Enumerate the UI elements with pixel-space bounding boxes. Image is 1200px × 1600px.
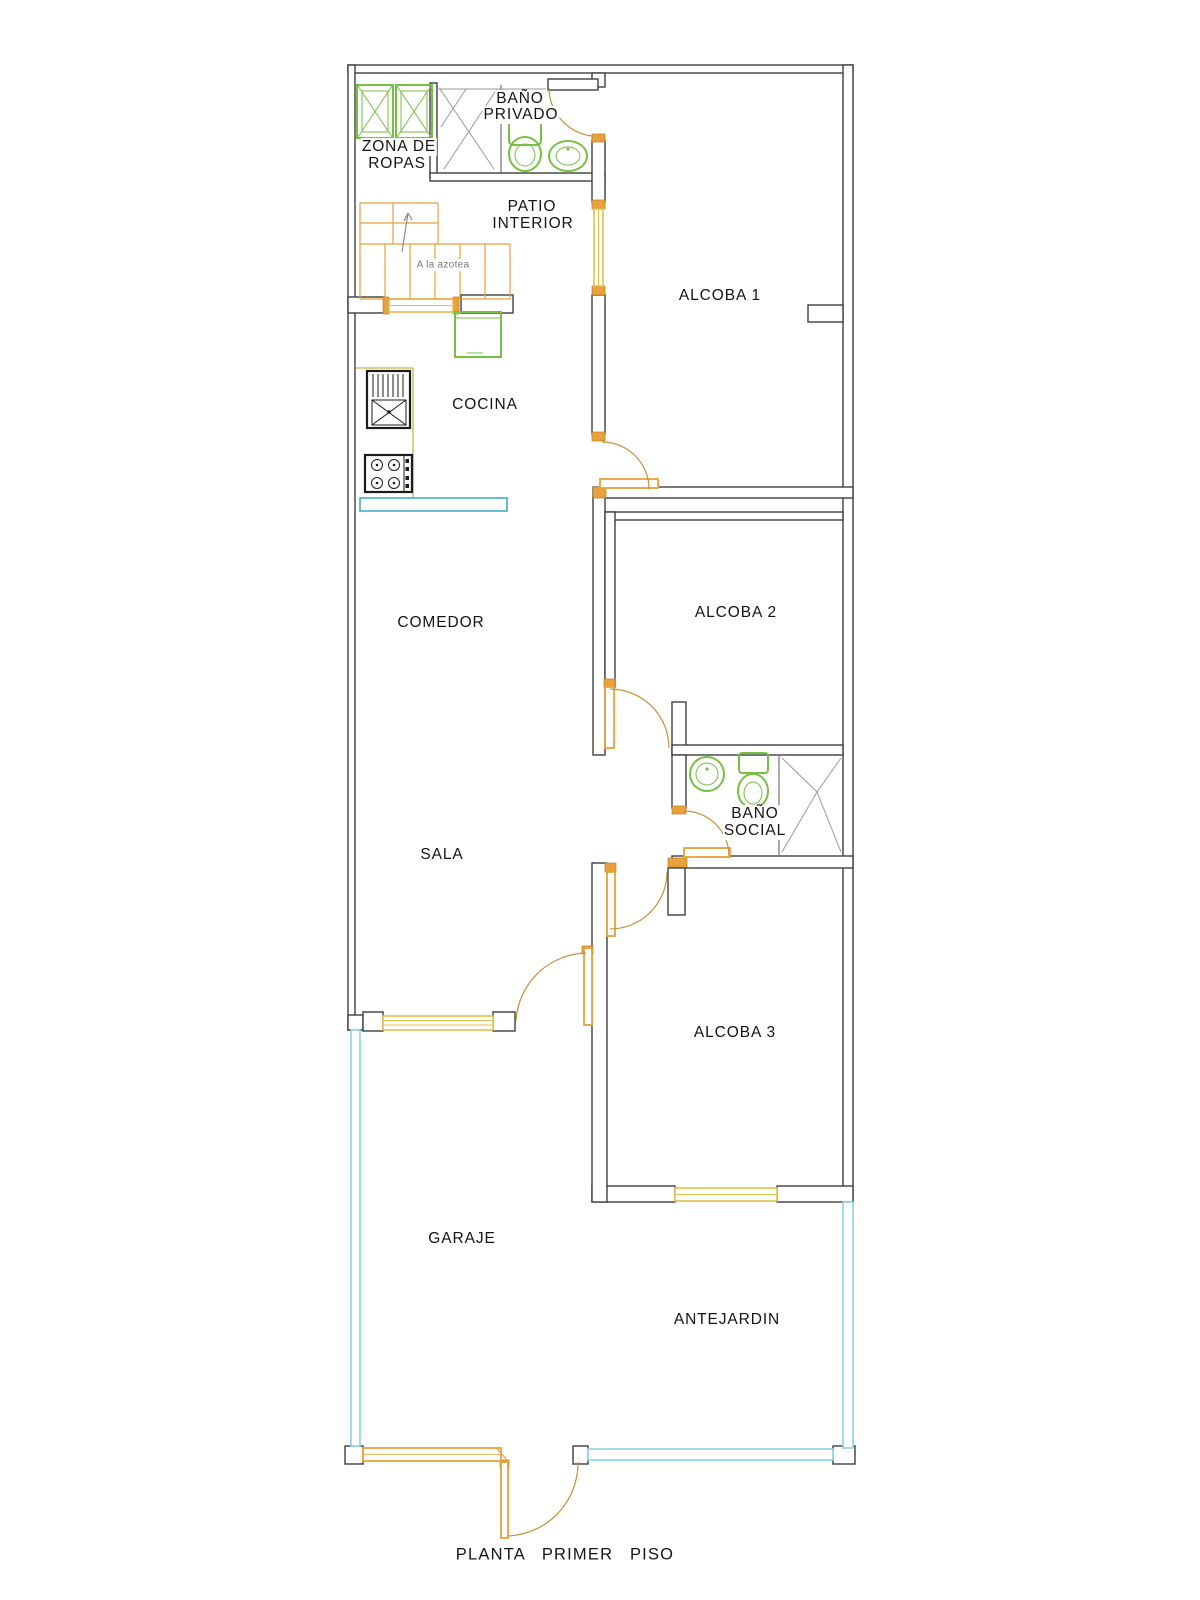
stairs — [360, 203, 510, 299]
room-label-patio-interior-1: PATIO — [507, 198, 558, 216]
room-label-alcoba-2: ALCOBA 2 — [694, 604, 778, 622]
room-label-zona-de-ropas-1: ZONA DE — [361, 138, 437, 156]
stairs-note: A la azotea — [416, 259, 471, 271]
room-label-cocina: COCINA — [451, 396, 519, 414]
alcoba-1-door — [600, 442, 658, 489]
room-label-alcoba-1: ALCOBA 1 — [678, 287, 762, 305]
bano-social-toilet-icon — [738, 753, 768, 808]
washing-machine-icon — [357, 85, 393, 138]
front-pedestrian-door — [501, 1462, 578, 1538]
bano-social-sink-icon — [690, 757, 724, 791]
plan-title: PLANTA PRIMER PISO — [455, 1546, 675, 1565]
refrigerator-icon — [455, 312, 501, 357]
room-label-sala: SALA — [419, 846, 464, 864]
sala-window — [383, 1016, 493, 1030]
bano-social-shower-icon — [779, 756, 841, 855]
kitchen-sink-icon — [367, 371, 410, 428]
room-label-comedor: COMEDOR — [396, 614, 485, 632]
garage-gate — [363, 1448, 509, 1462]
room-label-antejardin: ANTEJARDIN — [673, 1311, 781, 1329]
bano-privado-sink-icon — [549, 141, 587, 171]
room-label-garaje: GARAJE — [427, 1230, 496, 1248]
alcoba-3-door — [607, 872, 667, 936]
room-label-alcoba-3: ALCOBA 3 — [693, 1024, 777, 1042]
alcoba-3-window — [675, 1188, 777, 1201]
sala-entrance-door — [516, 948, 592, 1025]
room-label-zona-de-ropas-2: ROPAS — [367, 155, 427, 173]
stove-icon — [365, 455, 412, 492]
room-label-patio-interior-2: INTERIOR — [491, 215, 574, 233]
bano-privado-toilet-icon — [509, 121, 541, 171]
patio-alcoba1-window — [592, 200, 605, 295]
room-label-bano-social-1: BAÑO — [730, 805, 780, 823]
floor-plan: ZONA DE ROPAS BAÑO PRIVADO PATIO INTERIO… — [0, 0, 1200, 1600]
room-label-bano-social-2: SOCIAL — [723, 822, 787, 840]
windows — [383, 200, 777, 1201]
alcoba-2-door — [605, 687, 669, 748]
dryer-icon — [396, 85, 432, 138]
floor-plan-geometry — [0, 0, 1200, 1600]
room-label-bano-privado-2: PRIVADO — [483, 106, 560, 124]
